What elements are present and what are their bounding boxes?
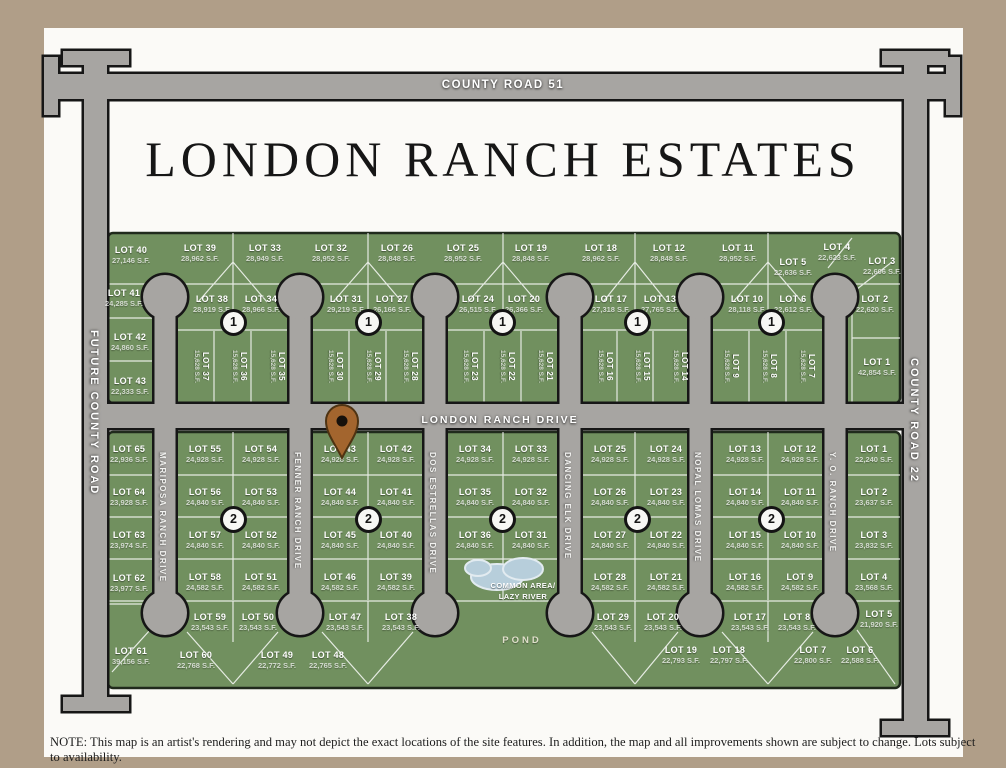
map-canvas bbox=[0, 0, 1006, 768]
plat-map-page: LONDON RANCH ESTATES COUNTY ROAD 51 LOND… bbox=[0, 0, 1006, 768]
map-pin-icon[interactable] bbox=[320, 402, 364, 462]
lot-blocks bbox=[108, 233, 900, 688]
